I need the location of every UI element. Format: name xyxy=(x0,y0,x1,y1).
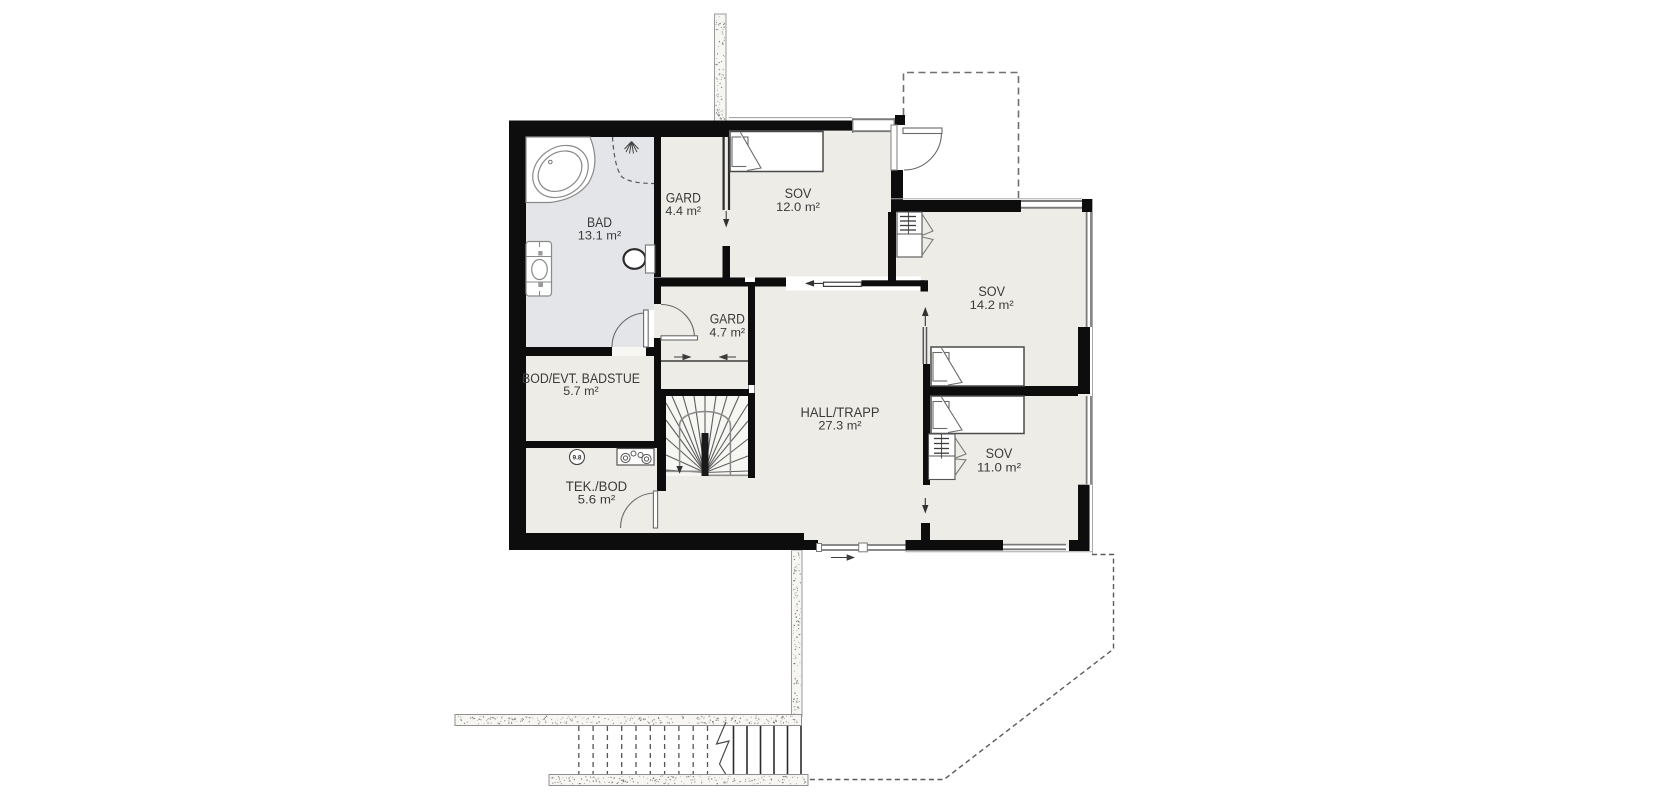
svg-text:5.7 m²: 5.7 m² xyxy=(563,384,598,398)
svg-text:13.1 m²: 13.1 m² xyxy=(578,229,622,243)
svg-text:12.0 m²: 12.0 m² xyxy=(776,200,820,214)
svg-text:5.6 m²: 5.6 m² xyxy=(578,493,616,507)
svg-text:27.3 m²: 27.3 m² xyxy=(818,418,861,432)
svg-text:SOV: SOV xyxy=(785,186,812,201)
svg-text:4.7 m²: 4.7 m² xyxy=(709,325,745,339)
svg-text:4.4 m²: 4.4 m² xyxy=(665,204,701,218)
svg-text:11.0 m²: 11.0 m² xyxy=(977,460,1021,474)
svg-text:9.8: 9.8 xyxy=(572,455,581,462)
svg-text:GARD: GARD xyxy=(710,312,745,327)
svg-text:14.2 m²: 14.2 m² xyxy=(970,298,1014,312)
svg-text:SOV: SOV xyxy=(986,446,1013,461)
